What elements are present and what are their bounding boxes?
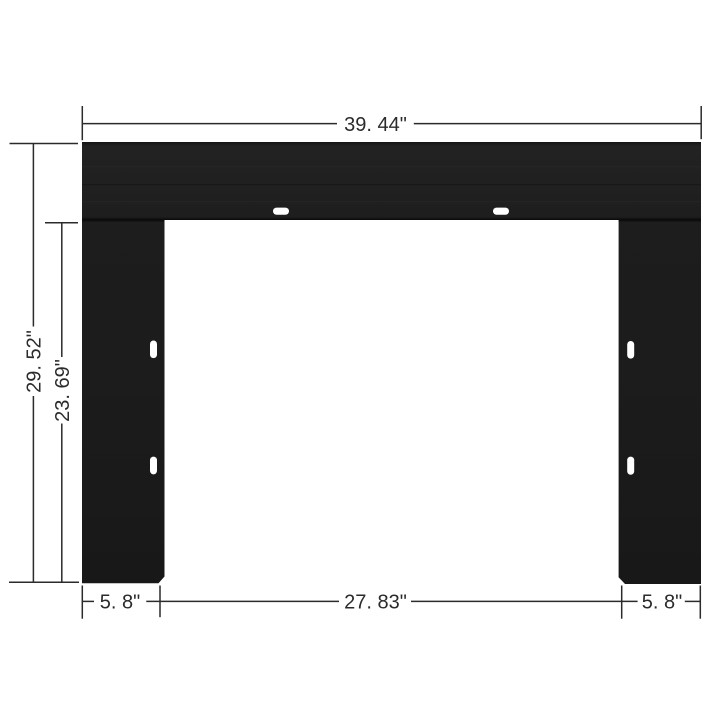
svg-text:5. 8": 5. 8" [100,592,140,614]
svg-text:27. 83": 27. 83" [344,592,407,614]
svg-text:23. 69": 23. 69" [52,359,74,422]
svg-text:29. 52": 29. 52" [24,330,46,393]
svg-text:39. 44": 39. 44" [344,114,407,136]
svg-text:5. 8": 5. 8" [642,592,682,614]
